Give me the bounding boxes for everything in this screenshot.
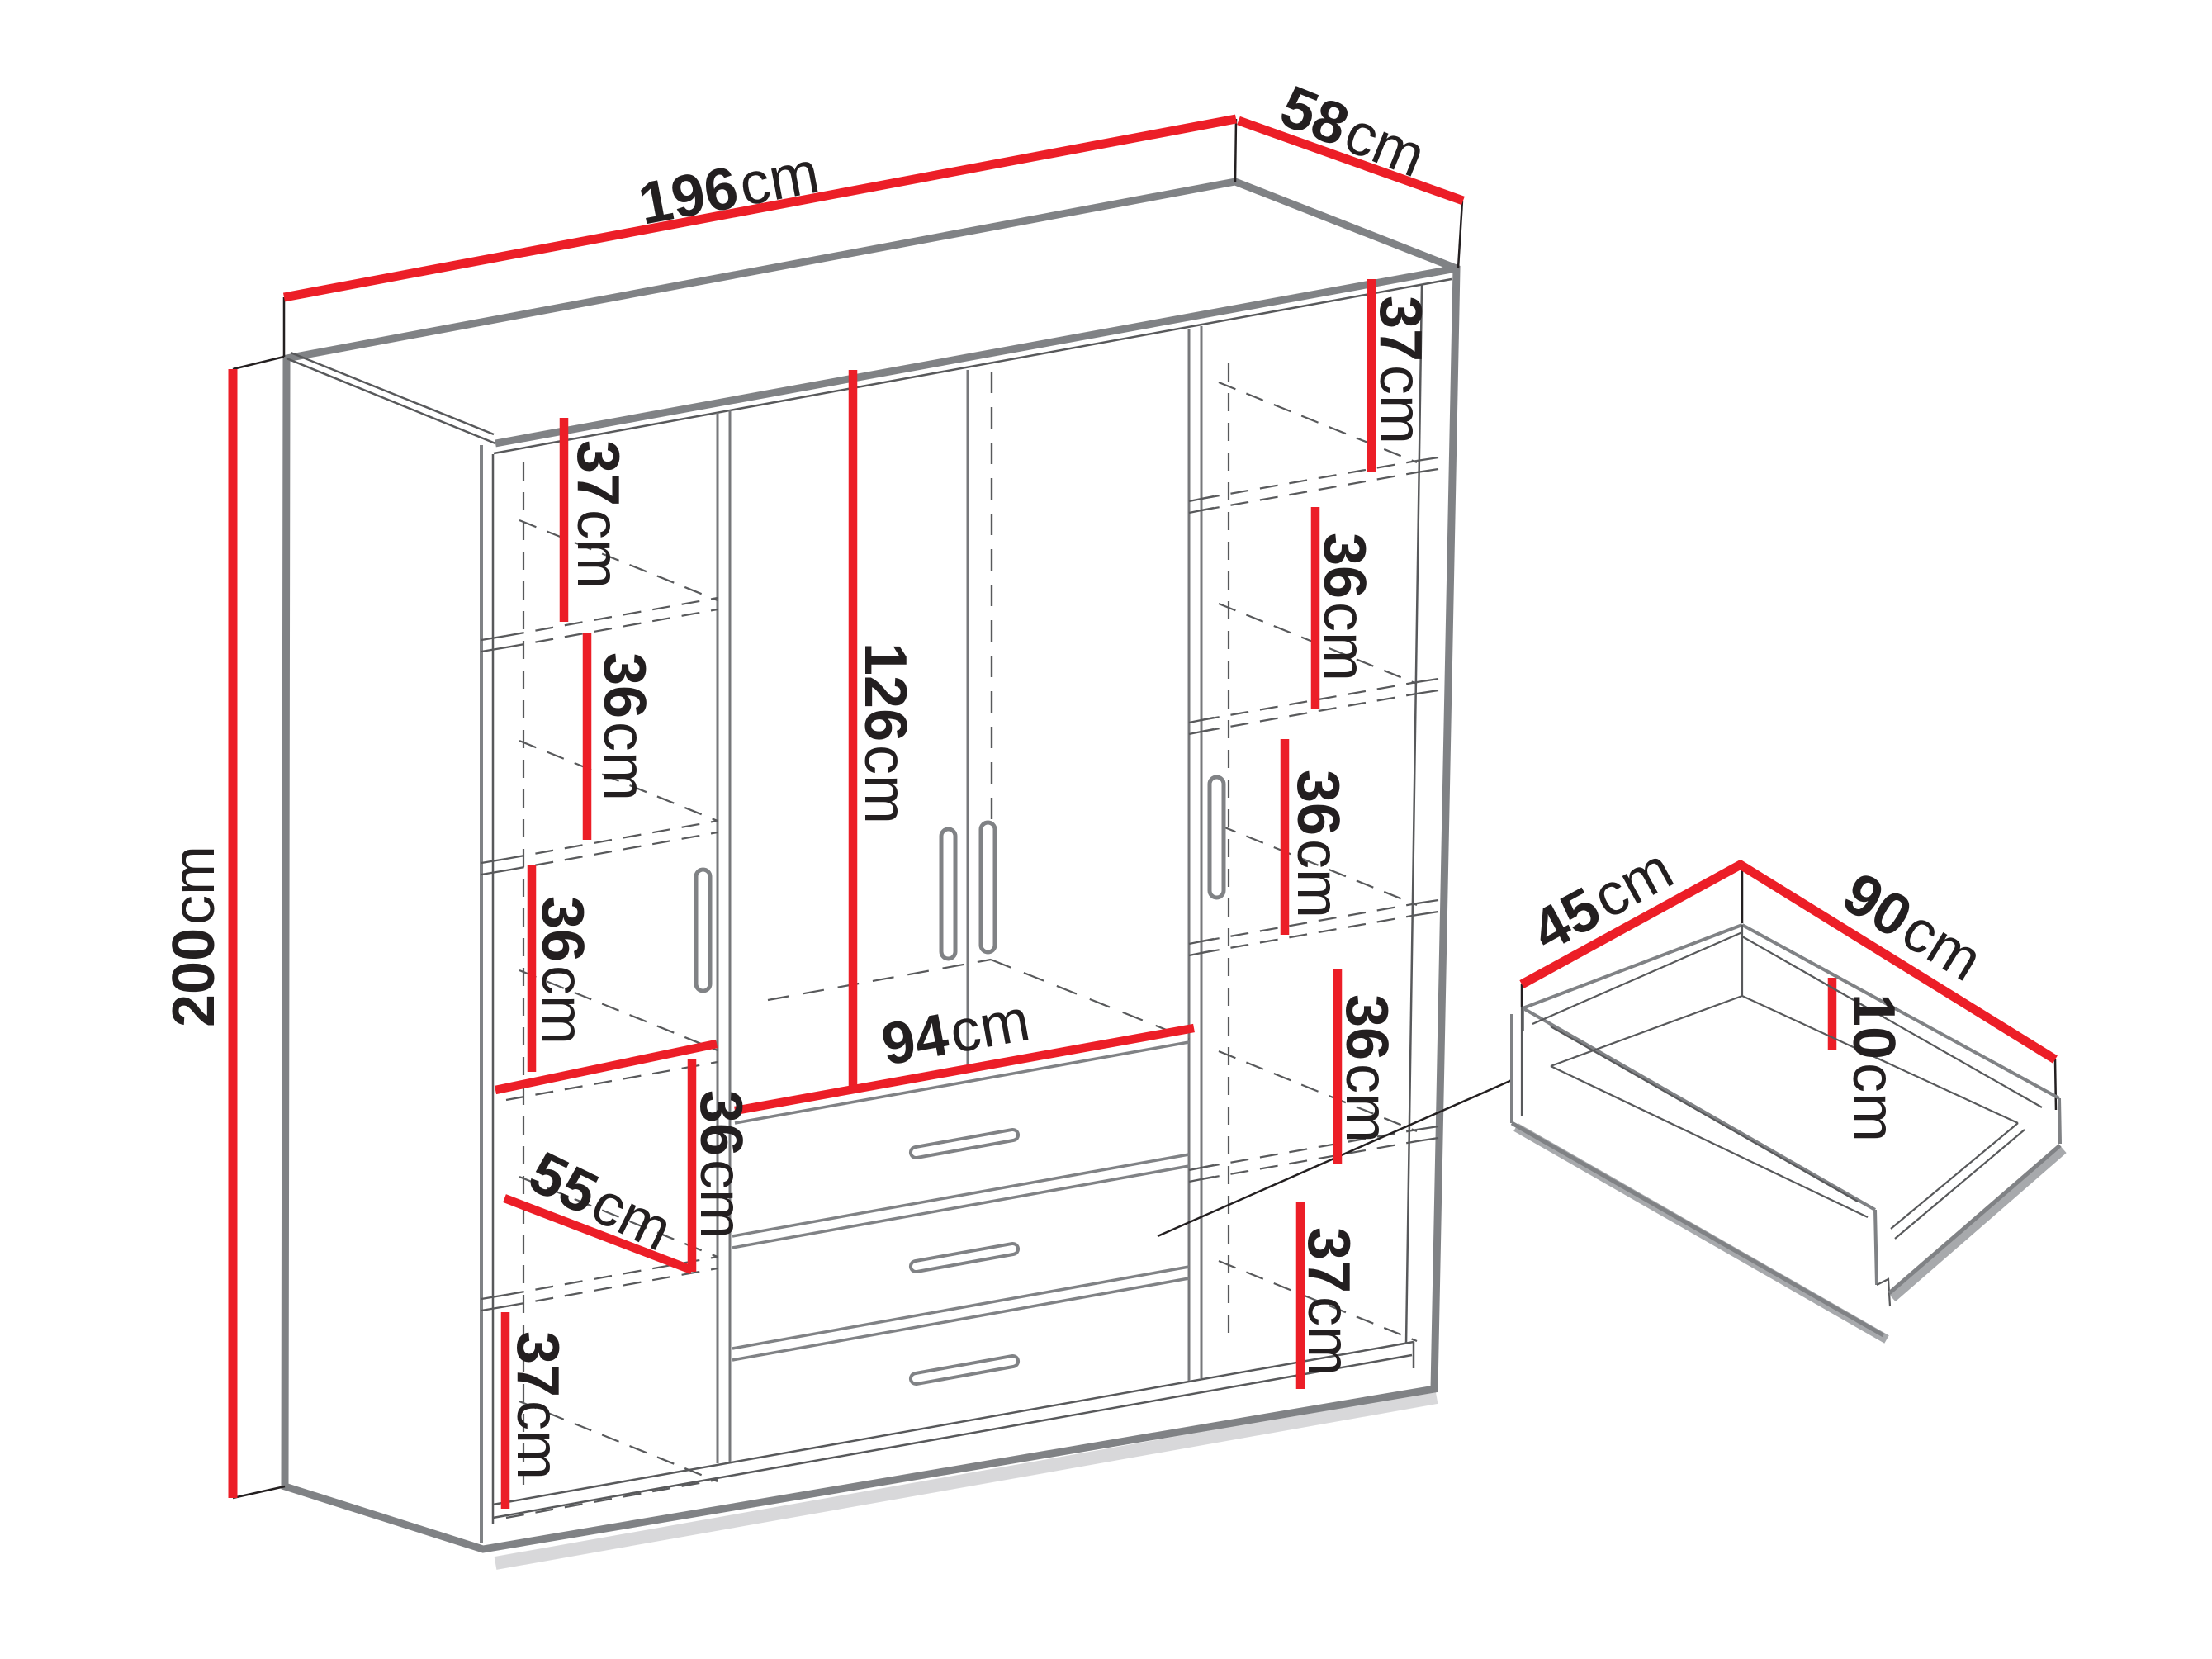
svg-text:37: 37: [1295, 1227, 1362, 1293]
svg-text:cm: cm: [529, 965, 595, 1045]
svg-text:200: 200: [161, 928, 227, 1027]
svg-text:cm: cm: [1367, 365, 1433, 444]
svg-text:cm: cm: [1840, 1063, 1906, 1142]
svg-text:cm: cm: [1285, 839, 1351, 918]
svg-text:37: 37: [565, 440, 631, 506]
svg-text:cm: cm: [1333, 1064, 1400, 1143]
svg-text:cm: cm: [1295, 1296, 1362, 1376]
svg-text:36: 36: [1311, 533, 1377, 599]
svg-text:cm: cm: [852, 745, 918, 824]
svg-text:36: 36: [1285, 770, 1351, 836]
svg-text:94: 94: [877, 1002, 954, 1078]
svg-text:37: 37: [1367, 296, 1433, 362]
svg-text:36: 36: [688, 1090, 754, 1156]
svg-text:cm: cm: [565, 510, 631, 589]
svg-text:cm: cm: [161, 846, 227, 925]
svg-text:cm: cm: [688, 1159, 754, 1239]
svg-text:cm: cm: [1311, 602, 1377, 681]
svg-text:36: 36: [529, 896, 595, 962]
svg-text:37: 37: [504, 1331, 571, 1397]
svg-text:cm: cm: [945, 987, 1035, 1066]
svg-text:cm: cm: [591, 722, 657, 801]
svg-text:36: 36: [591, 652, 657, 718]
svg-text:36: 36: [1333, 994, 1400, 1060]
svg-text:126: 126: [852, 642, 918, 742]
svg-text:10: 10: [1840, 993, 1906, 1059]
svg-text:cm: cm: [504, 1401, 571, 1480]
